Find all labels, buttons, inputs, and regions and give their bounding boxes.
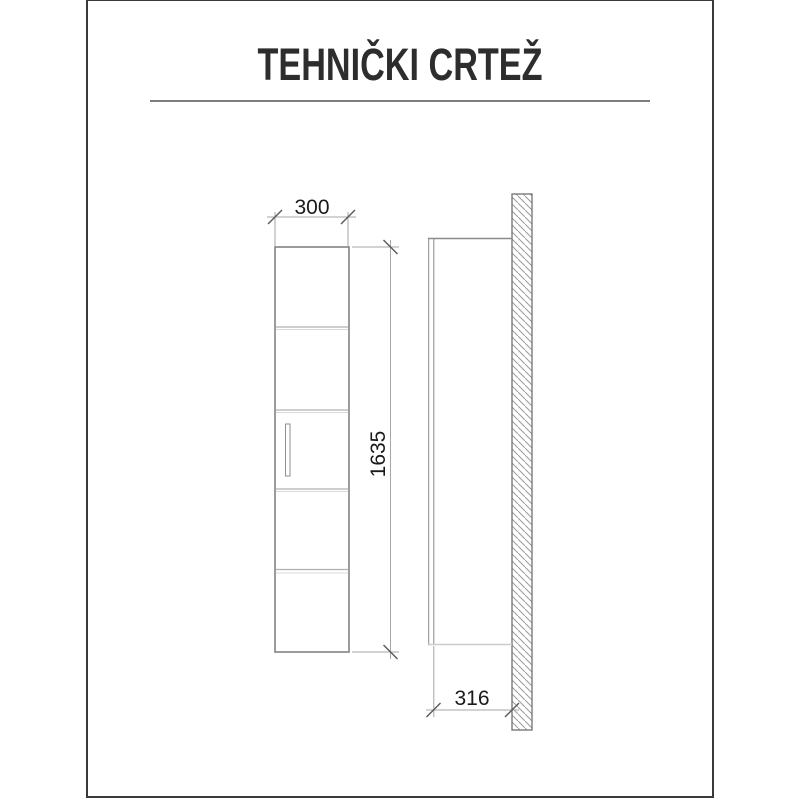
front-view: [275, 247, 349, 652]
depth-dimension-label: 316: [454, 687, 489, 710]
width-dimension: 300: [267, 196, 356, 246]
height-dimension: 1635: [352, 240, 399, 659]
door-handle: [286, 424, 291, 476]
technical-drawing: 300 1635 316: [0, 0, 800, 800]
depth-dimension: 316: [426, 646, 519, 717]
width-dimension-label: 300: [294, 196, 329, 219]
wall-section-hatched: [512, 194, 532, 730]
side-view: [428, 194, 532, 730]
height-dimension-label: 1635: [367, 431, 390, 478]
